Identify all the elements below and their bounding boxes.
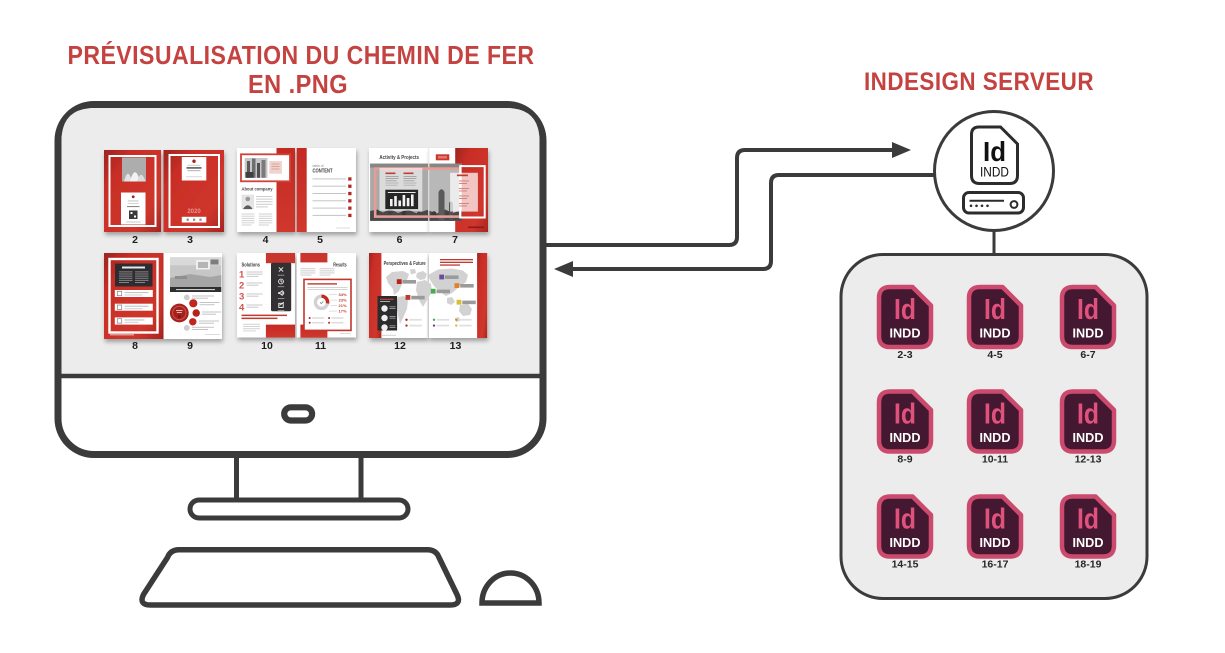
svg-text:INDD: INDD <box>980 430 1011 445</box>
svg-text:Id: Id <box>983 136 1006 167</box>
svg-text:INDESIGN SERVEUR: INDESIGN SERVEUR <box>864 68 1094 96</box>
svg-text:EN .PNG: EN .PNG <box>248 69 348 99</box>
svg-text:4-5: 4-5 <box>987 349 1002 361</box>
svg-text:2-3: 2-3 <box>897 349 912 361</box>
svg-text:Activity & Projects: Activity & Projects <box>379 155 419 161</box>
svg-text:Id: Id <box>984 399 1006 431</box>
svg-text:Id: Id <box>1077 399 1099 431</box>
svg-text:Id: Id <box>984 504 1006 536</box>
svg-text:9: 9 <box>187 340 193 352</box>
svg-text:Id: Id <box>1077 294 1099 326</box>
svg-text:Id: Id <box>894 399 916 431</box>
svg-text:Id: Id <box>984 294 1006 326</box>
svg-text:INDD: INDD <box>1073 430 1104 445</box>
svg-text:4: 4 <box>239 303 245 314</box>
svg-text:7: 7 <box>452 234 458 246</box>
svg-text:Id: Id <box>1077 504 1099 536</box>
svg-text:Id: Id <box>894 504 916 536</box>
svg-text:21%: 21% <box>339 303 347 308</box>
svg-text:17%: 17% <box>339 309 347 314</box>
svg-text:INDD: INDD <box>890 430 921 445</box>
svg-text:16-17: 16-17 <box>982 559 1009 571</box>
svg-text:8: 8 <box>132 340 138 352</box>
svg-text:3: 3 <box>239 292 244 303</box>
svg-text:PRÉVISUALISATION DU CHEMIN DE: PRÉVISUALISATION DU CHEMIN DE FER <box>68 40 535 70</box>
svg-text:INDD: INDD <box>980 326 1011 341</box>
svg-text:8-9: 8-9 <box>897 454 912 466</box>
svg-text:2020: 2020 <box>187 209 201 215</box>
svg-text:Results: Results <box>333 263 347 269</box>
svg-text:1: 1 <box>239 270 245 281</box>
svg-text:13: 13 <box>450 340 462 352</box>
svg-text:INDD: INDD <box>980 164 1009 180</box>
svg-text:34%: 34% <box>339 292 347 297</box>
svg-text:Perspectives & Future: Perspectives & Future <box>384 261 426 267</box>
svg-text:INDD: INDD <box>890 535 921 550</box>
svg-text:Solutions: Solutions <box>242 263 261 269</box>
svg-text:CONTENT: CONTENT <box>313 169 334 175</box>
svg-text:2: 2 <box>132 234 138 246</box>
svg-text:table of: table of <box>313 164 324 168</box>
svg-text:2: 2 <box>239 281 244 292</box>
svg-text:6-7: 6-7 <box>1080 349 1095 361</box>
svg-text:12-13: 12-13 <box>1075 454 1102 466</box>
svg-text:INDD: INDD <box>1073 326 1104 341</box>
svg-text:18-19: 18-19 <box>1075 559 1102 571</box>
svg-text:INDD: INDD <box>1073 535 1104 550</box>
svg-text:3: 3 <box>187 234 193 246</box>
svg-text:About company: About company <box>242 187 273 193</box>
svg-text:Id: Id <box>894 294 916 326</box>
svg-text:23%: 23% <box>339 298 347 303</box>
svg-text:11: 11 <box>315 340 326 352</box>
svg-text:10: 10 <box>261 340 273 352</box>
svg-text:6: 6 <box>397 234 403 246</box>
svg-text:INDD: INDD <box>980 535 1011 550</box>
svg-text:4: 4 <box>263 234 269 246</box>
svg-text:14-15: 14-15 <box>892 559 919 571</box>
svg-text:5: 5 <box>317 234 323 246</box>
svg-text:INDD: INDD <box>890 326 921 341</box>
svg-text:10-11: 10-11 <box>982 454 1008 466</box>
svg-text:12: 12 <box>394 340 406 352</box>
